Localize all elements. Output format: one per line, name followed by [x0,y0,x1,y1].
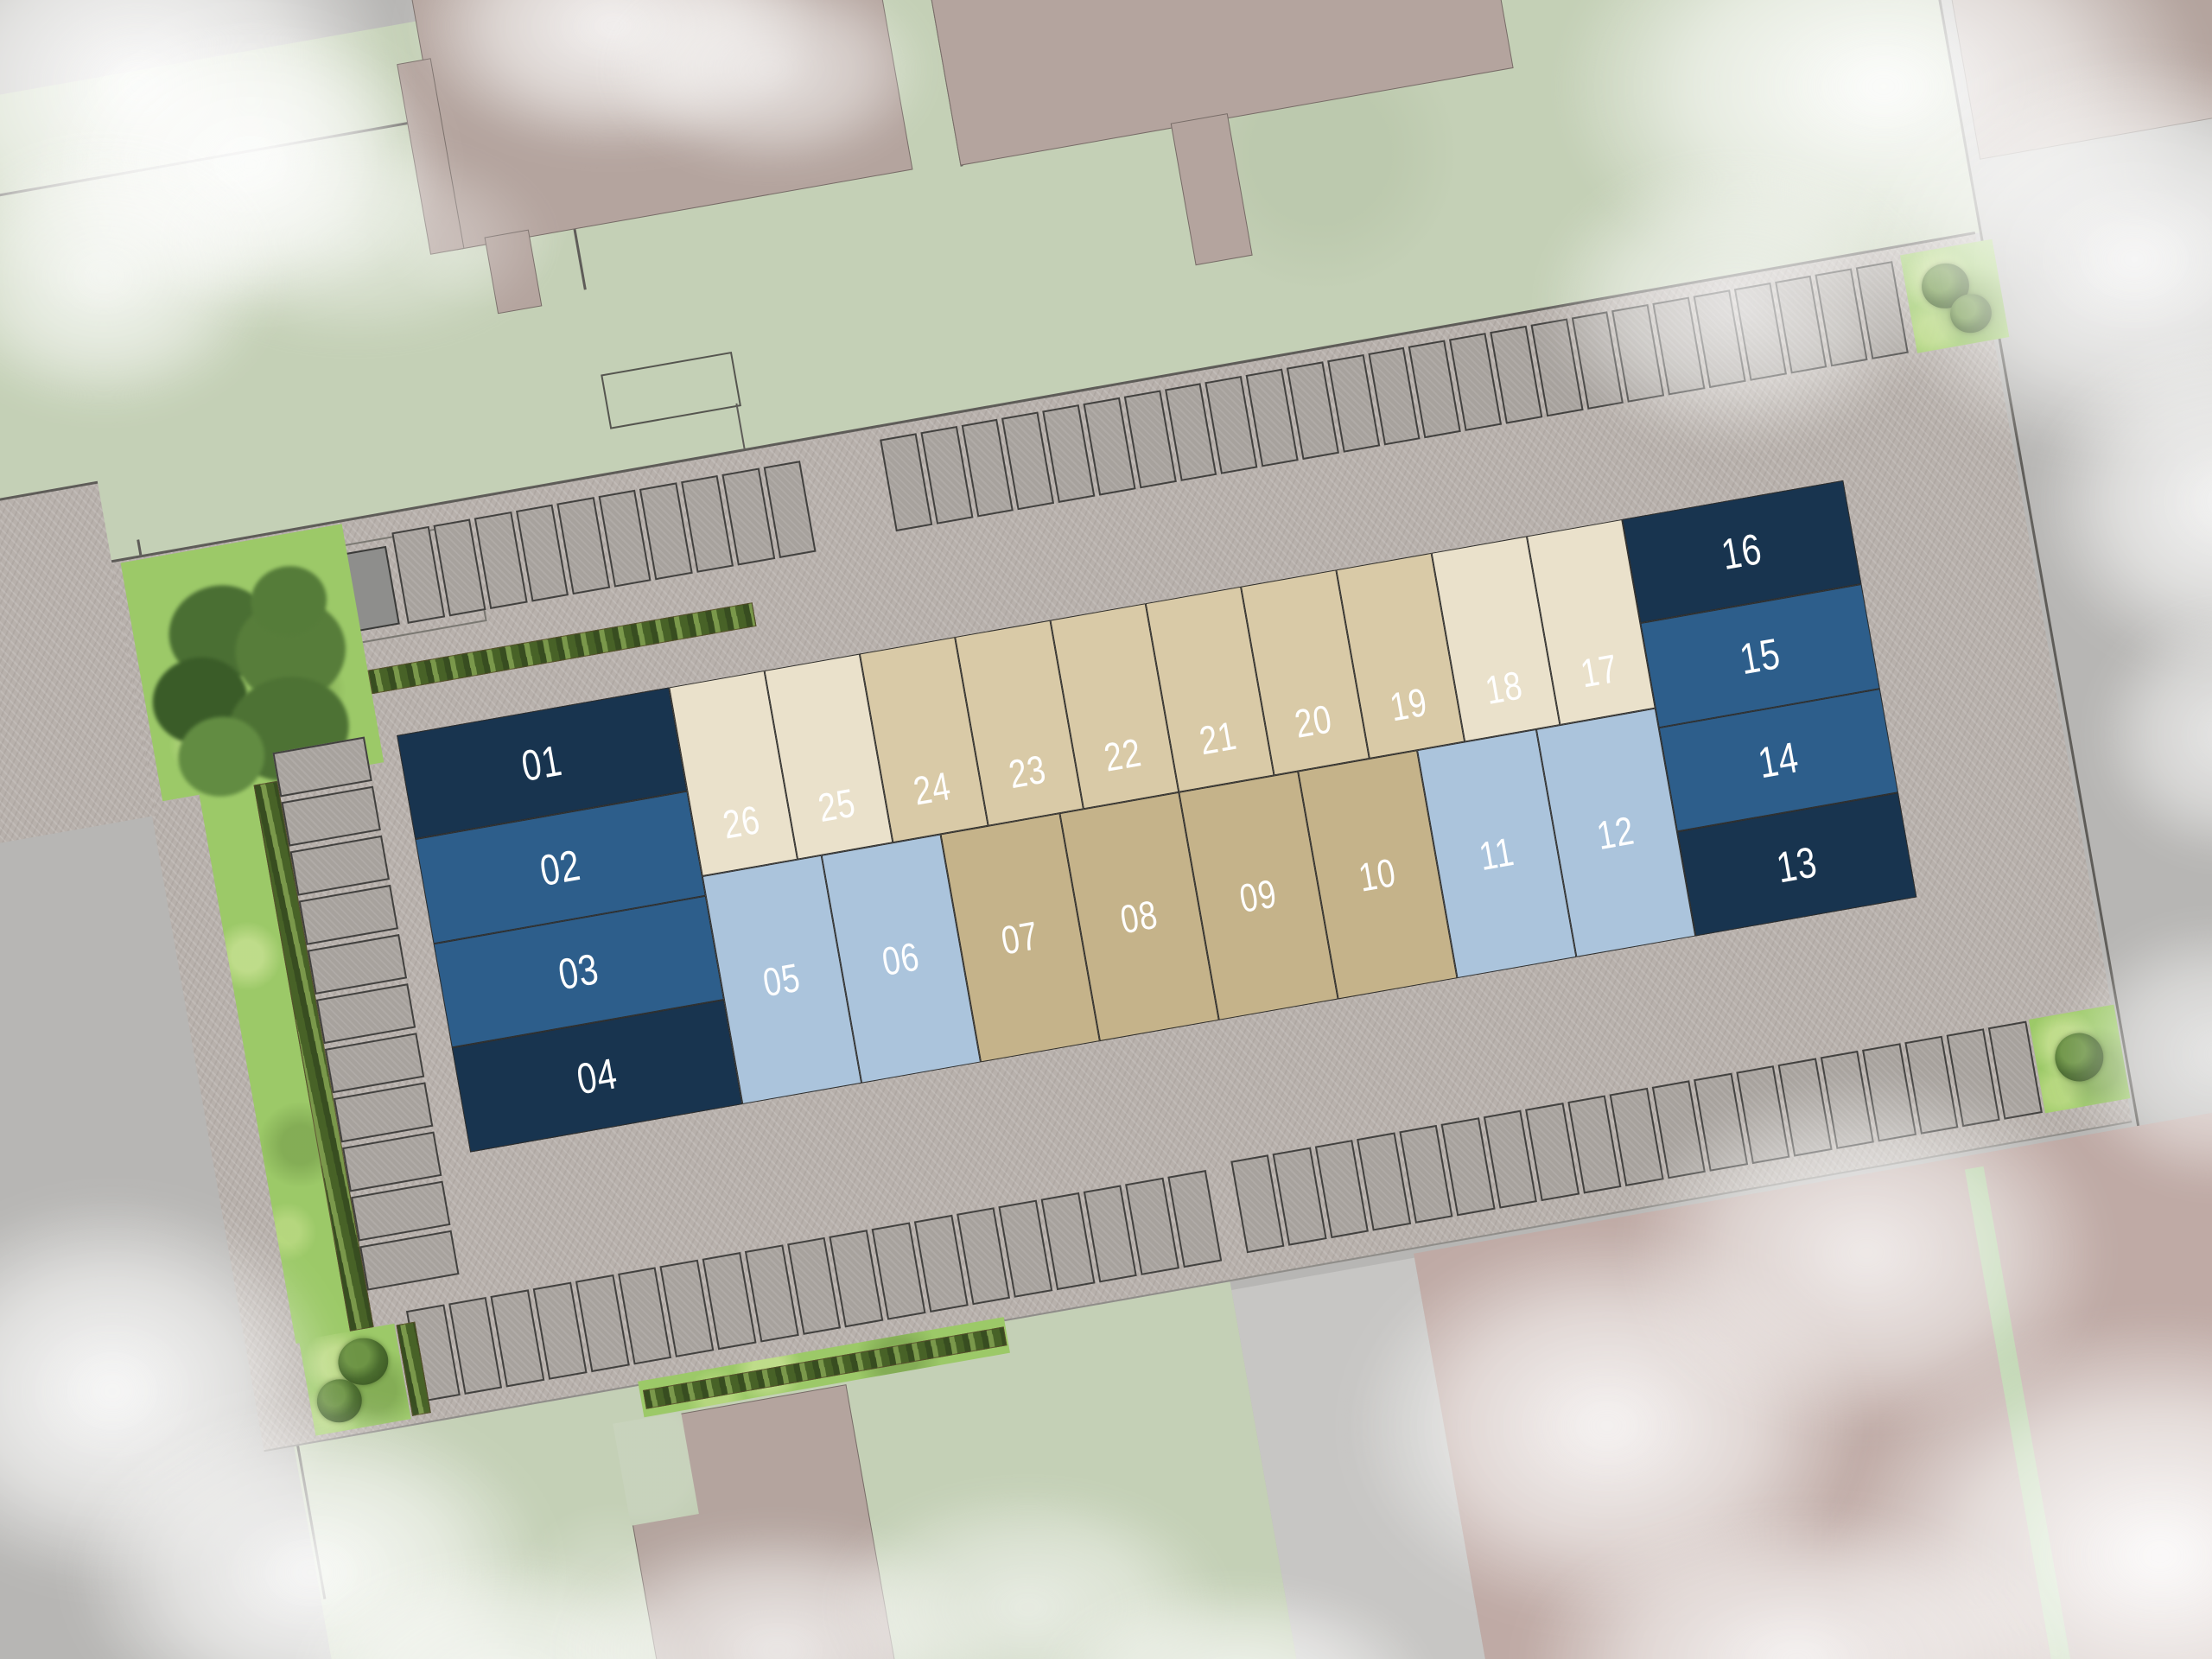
unit-label: 08 [1117,891,1161,944]
unit-label: 10 [1356,849,1400,901]
unit-label: 24 [910,762,954,815]
unit-label: 18 [1482,661,1526,714]
unit-label: 04 [573,1048,620,1104]
unit-label: 02 [537,839,584,895]
green-patch-south-west [299,1324,411,1436]
unit-label: 25 [815,779,859,831]
unit-label: 26 [720,796,764,849]
unit-label: 23 [1006,746,1050,798]
unit-label: 14 [1755,732,1802,788]
cloud [2091,605,2212,864]
unit-label: 07 [998,912,1042,964]
unit-label: 01 [518,735,566,791]
neighbour-building-north-east [1949,0,2212,160]
bush-icon [2051,1029,2107,1085]
unit-label: 05 [760,954,804,1007]
unit-label: 12 [1593,806,1637,859]
green-patch-south-east [2029,1005,2131,1114]
unit-label: 17 [1578,645,1622,697]
unit-label: 15 [1736,628,1783,684]
unit-label: 19 [1387,678,1431,731]
unit-label: 09 [1236,869,1281,922]
unit-label: 22 [1101,728,1145,781]
cloud [2031,328,2212,674]
unit-label: 03 [555,944,602,1000]
unit-label: 06 [879,932,923,985]
unit-label: 20 [1292,695,1336,747]
site-masterplan: 01 02 03 04 26 25 24 23 22 21 20 19 18 1… [0,0,2212,1659]
unit-label: 13 [1773,836,1821,893]
green-patch-north-east [1900,239,2009,353]
unit-label: 16 [1718,524,1765,580]
unit-label: 11 [1476,828,1518,880]
unit-label: 21 [1196,712,1240,765]
